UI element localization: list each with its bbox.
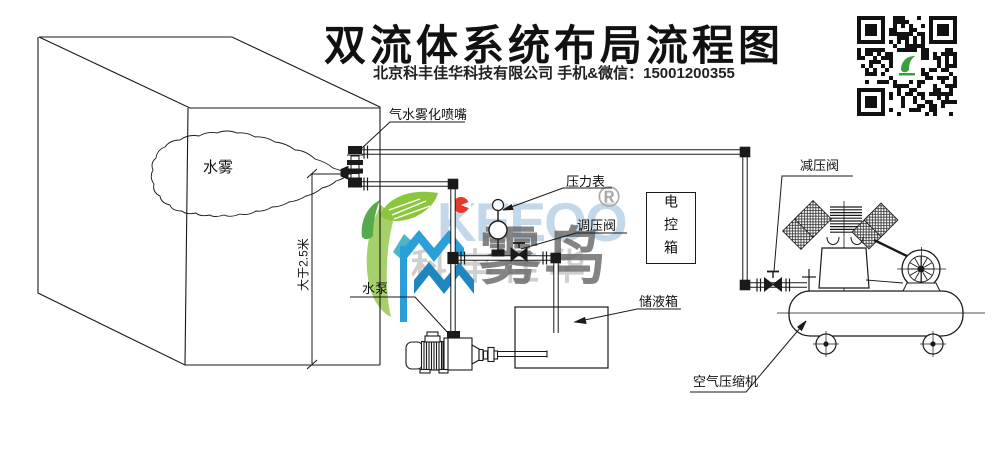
pump-inlet-fitting xyxy=(447,331,460,338)
air-compressor xyxy=(777,201,985,357)
water-pump xyxy=(406,331,547,373)
label-electric-control-box: 电控箱 xyxy=(661,194,681,263)
room-box xyxy=(38,37,380,365)
height-dimension xyxy=(307,169,351,369)
label-min-height: 大于2.5米 xyxy=(297,229,310,301)
compressor-cylinder-left xyxy=(783,201,832,250)
diagram-page: 双流体系统布局流程图 北京科丰佳华科技有限公司 手机&微信：1500120035… xyxy=(0,0,992,460)
page-subtitle: 北京科丰佳华科技有限公司 手机&微信：15001200355 xyxy=(318,62,790,83)
pressure-gauge xyxy=(489,200,507,257)
label-air-compressor: 空气压缩机 xyxy=(693,375,758,389)
label-nozzle: 气水雾化喷嘴 xyxy=(389,108,467,122)
label-water-pump: 水泵 xyxy=(362,282,388,296)
label-reducing-valve: 减压阀 xyxy=(800,159,839,173)
air-tank xyxy=(789,291,963,336)
spray-nozzle xyxy=(341,147,363,188)
qr-code xyxy=(856,16,958,116)
label-regulating-valve: 调压阀 xyxy=(577,219,616,233)
storage-tank xyxy=(515,307,608,368)
electric-control-box: 电控箱 xyxy=(646,192,696,264)
label-pressure-gauge: 压力表 xyxy=(566,175,605,189)
qr-center-logo xyxy=(894,53,920,79)
belt xyxy=(874,240,911,258)
reducing-valve xyxy=(765,272,782,292)
label-water-mist: 水雾 xyxy=(203,160,233,177)
label-storage-tank: 储液箱 xyxy=(639,295,678,309)
